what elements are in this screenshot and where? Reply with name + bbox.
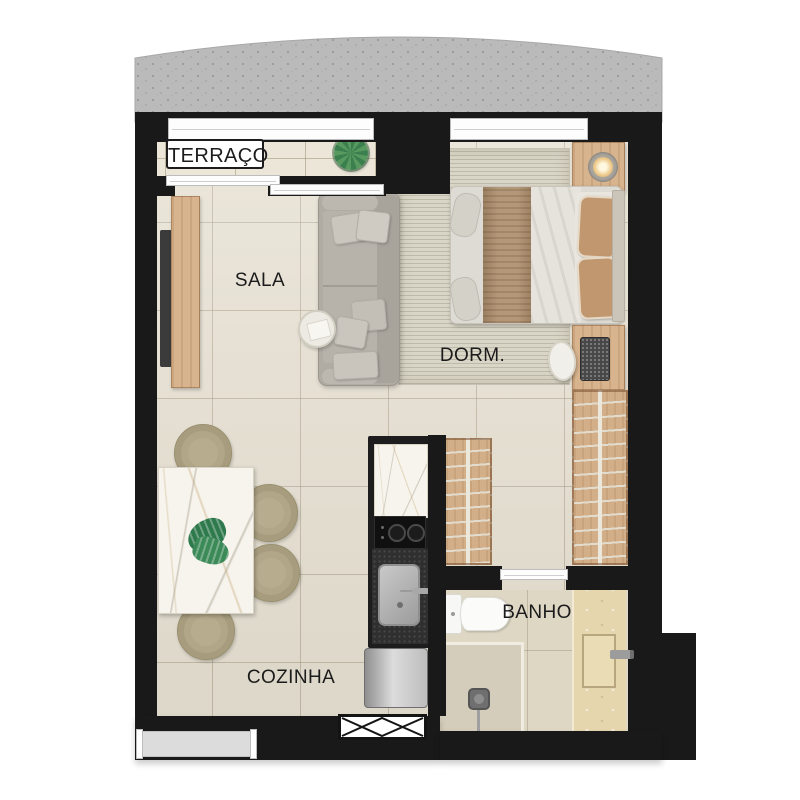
burner — [407, 524, 425, 542]
bed-headboard — [612, 190, 625, 322]
bed-duvet — [531, 187, 581, 323]
wall-right-notch — [660, 633, 696, 760]
bed-bolster — [448, 191, 484, 240]
vanity-faucet — [610, 650, 634, 659]
wall-bottom-right — [440, 731, 662, 760]
wall-right — [628, 112, 662, 760]
terrace-window — [168, 118, 374, 140]
wall-left — [135, 112, 157, 760]
double-bed — [450, 186, 622, 324]
bed-throw-blanket — [483, 187, 533, 323]
shower-head — [468, 688, 490, 710]
dining-table — [158, 467, 254, 614]
flush-button — [451, 612, 455, 616]
sill-end-cap — [250, 729, 257, 759]
exterior-sill — [141, 731, 253, 757]
burner — [388, 524, 406, 542]
duct-shaft — [338, 714, 427, 740]
bedroom-wardrobe-hangers — [572, 390, 628, 565]
kitchen-counter — [368, 436, 432, 648]
terrace-label-box: TERRAÇO — [166, 139, 264, 169]
tv-console — [171, 196, 200, 388]
sink-drain — [397, 602, 403, 608]
bathroom-label: BANHO — [497, 602, 577, 624]
bedroom-window — [450, 118, 588, 140]
closet-wardrobe-hangers — [444, 438, 492, 565]
laptop — [580, 337, 610, 381]
terrace-sliding-door-panel — [270, 184, 384, 195]
wall-bath-top-left — [428, 566, 502, 590]
sofa-pillow — [332, 351, 378, 380]
lamp-shade — [593, 157, 613, 177]
cooktop-knob — [381, 536, 384, 539]
terrace-sliding-door-panel — [166, 175, 280, 186]
terrace-label: TERRAÇO — [168, 145, 269, 167]
round-side-table — [298, 310, 336, 348]
sill-end-cap — [136, 729, 143, 759]
living-room-label: SALA — [220, 270, 300, 292]
bedroom-label: DORM. — [430, 345, 515, 367]
cooktop-knob — [381, 526, 384, 529]
sofa-armrest-top — [322, 195, 378, 210]
kitchen-sink — [378, 564, 420, 626]
wall-pillar-terrace-bedroom — [376, 112, 450, 194]
floor-plan: TERRAÇO SALA DORM. BANHO COZINHA — [0, 0, 800, 800]
table-lamp — [588, 152, 618, 182]
sofa-pillow — [355, 209, 391, 244]
sofa-pillow — [333, 315, 370, 349]
refrigerator — [364, 648, 428, 708]
counter-marble-top — [374, 444, 428, 518]
monstera-leaf — [190, 533, 232, 569]
bed-bolster — [448, 275, 483, 323]
kitchen-label: COZINHA — [246, 667, 336, 689]
wall-bath-top-right — [566, 566, 630, 590]
book — [306, 319, 332, 342]
shower-hose — [477, 710, 480, 732]
recessed-sink — [582, 634, 616, 688]
bathroom-door-track — [500, 569, 568, 580]
shower-head-face — [474, 694, 484, 704]
cooktop — [374, 516, 426, 549]
sofa-seat-divider — [323, 285, 377, 287]
